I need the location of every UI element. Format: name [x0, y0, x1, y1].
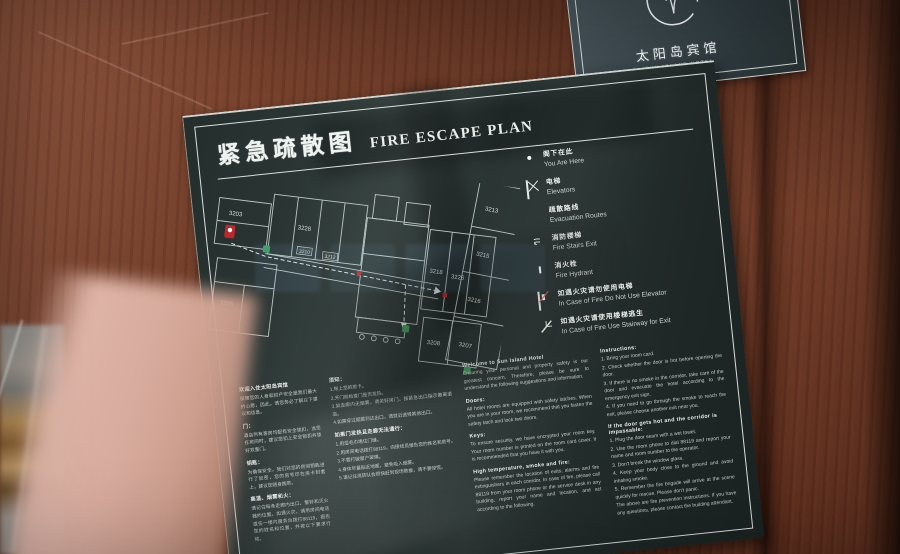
title-english: FIRE ESCAPE PLAN [369, 118, 534, 154]
room-label: 3228 [297, 225, 312, 233]
cn-fire-text: 请记住每条走廊内出口、警铃和灭火器的位置。如遇火灾，请用房间电话或任一楼内服务台… [251, 497, 332, 543]
column-english-welcome: Welcome to Sun Island Hotel Ensuring you… [461, 345, 608, 554]
room-label: 3203 [229, 211, 244, 219]
room-label: 3216 [467, 297, 482, 306]
room-label: 3215 [476, 252, 491, 261]
room-label: 3212 [324, 254, 336, 261]
legend-label-en: Elevators [547, 185, 576, 197]
instruction-columns: 欢迎入住太阳岛宾馆 保障您的人身和财产安全是我们最大的心愿，因此，请您务必了解以… [238, 331, 741, 554]
room-label: 3218 [429, 269, 444, 277]
room-label: 3213 [484, 206, 499, 215]
floor-plan-drawing: 3213 3215 3216 3207 3218 3226 3228 3203 … [198, 152, 520, 387]
room-label: 3226 [450, 274, 465, 282]
photo-of-fire-escape-sign: 太阳岛宾馆 SUN ISLAND HOTEL 紧急疏散图 FIRE ESCAPE… [0, 0, 900, 554]
column-chinese-welcome: 欢迎入住太阳岛宾馆 保障您的人身和财产安全是我们最大的心愿，因此，请您务必了解以… [238, 373, 337, 554]
room-label: 3210 [298, 249, 310, 256]
you-are-here-marker [224, 224, 236, 238]
fire-escape-plan-sign: 紧急疏散图 FIRE ESCAPE PLAN [182, 60, 764, 554]
column-english-instructions: Instructions: 1. Bring your room card. 2… [599, 331, 741, 548]
no-elevator-icon [537, 292, 541, 311]
corridor-room-badges: 3210 3212 [296, 246, 338, 261]
hotel-flower-logo-icon [640, 0, 704, 32]
wood-scratch [122, 12, 269, 44]
title-chinese: 紧急疏散图 [215, 122, 358, 170]
legend: 阁下在此 You Are Here 电梯 Elevators 疏散路线 Evac… [523, 133, 730, 348]
room-label: 3208 [426, 340, 441, 348]
room-label: 3207 [458, 342, 473, 351]
column-chinese-instructions: 须知： 1.带上您的房卡。 2.开门前检查门是否发热。 3.如走廊内无烟雾，请关… [328, 359, 470, 554]
room-label: 3205 [220, 300, 235, 308]
elevator-icon [526, 180, 530, 199]
